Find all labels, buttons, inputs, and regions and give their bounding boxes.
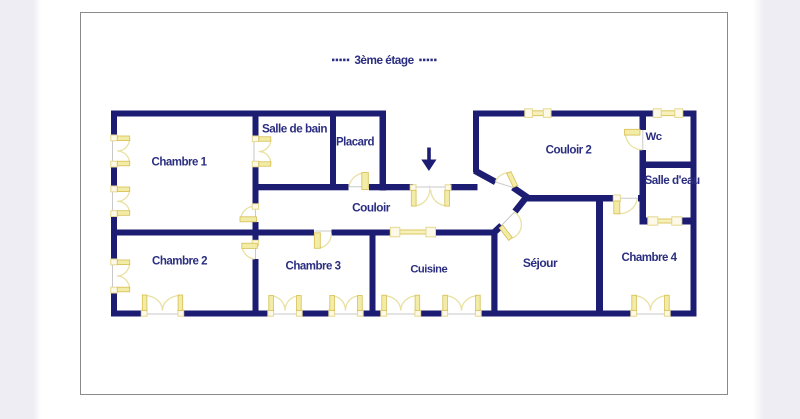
svg-text:Séjour: Séjour bbox=[523, 256, 558, 270]
svg-text:Couloir: Couloir bbox=[352, 201, 391, 215]
svg-text:Chambre 1: Chambre 1 bbox=[152, 157, 208, 169]
svg-text:Cuisine: Cuisine bbox=[410, 264, 447, 276]
svg-text:Wc: Wc bbox=[646, 131, 662, 143]
svg-text:Couloir 2: Couloir 2 bbox=[546, 144, 592, 157]
svg-text:3ème étage: 3ème étage bbox=[354, 53, 414, 67]
svg-text:Salle d'eau: Salle d'eau bbox=[645, 174, 700, 187]
svg-text:Placard: Placard bbox=[336, 136, 375, 148]
svg-text:Salle de bain: Salle de bain bbox=[262, 123, 327, 136]
svg-text:Chambre 4: Chambre 4 bbox=[622, 252, 678, 264]
svg-text:Chambre 2: Chambre 2 bbox=[152, 256, 207, 268]
svg-text:Chambre 3: Chambre 3 bbox=[286, 261, 341, 273]
